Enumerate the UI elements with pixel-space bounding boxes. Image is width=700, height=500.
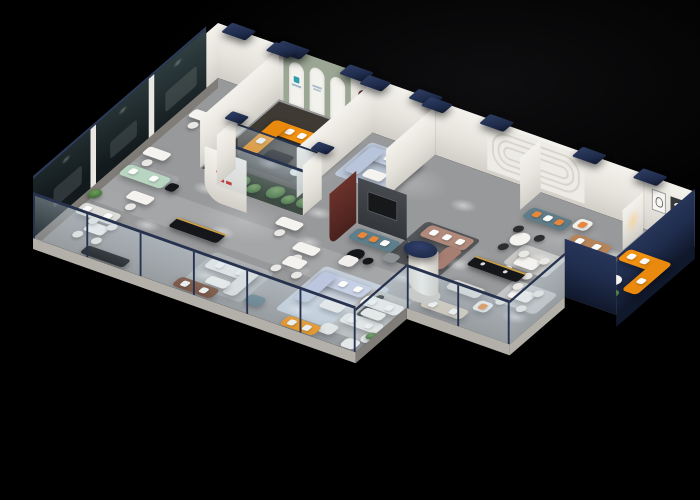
pillow	[635, 278, 647, 285]
glass-post	[508, 303, 510, 345]
pillow	[284, 128, 296, 135]
pillow	[626, 253, 638, 260]
pillow	[127, 168, 139, 175]
orange-pillow	[553, 219, 565, 226]
glass-mullion	[149, 74, 155, 141]
glass-post	[300, 289, 302, 333]
pillow	[454, 238, 466, 245]
brand-logo-text	[292, 83, 301, 88]
decor-object	[502, 270, 509, 274]
pillow	[542, 215, 554, 222]
arch-panel	[310, 65, 325, 115]
showcase-spotlight	[118, 103, 127, 117]
pillow	[639, 258, 651, 265]
frame-sketch-line	[656, 196, 663, 209]
glass-post	[140, 233, 142, 277]
pillow	[148, 175, 160, 182]
tv-screen	[367, 191, 397, 222]
glass-post	[407, 267, 409, 309]
pillow	[352, 286, 364, 293]
orange-pillow	[368, 236, 380, 243]
brand-logo-mark	[294, 76, 300, 84]
orange-pillow	[356, 232, 368, 239]
glass-post	[33, 195, 35, 239]
glass-post	[354, 309, 356, 353]
glass-post	[457, 285, 459, 327]
art-frame-sketch	[652, 189, 666, 215]
pillow	[379, 240, 391, 247]
showroom-render	[0, 0, 700, 500]
pillow	[337, 280, 349, 287]
showcase-spotlight	[173, 56, 182, 70]
glass-post	[193, 252, 195, 296]
pillow	[441, 234, 453, 241]
orange-pillow	[577, 221, 589, 228]
decor-object	[479, 262, 486, 266]
arch-panel	[289, 60, 304, 108]
cabinet-glow	[626, 203, 640, 239]
orange-pillow	[531, 211, 543, 218]
glass-post	[246, 271, 248, 315]
glass-post	[86, 214, 88, 258]
showcase-spotlight	[61, 152, 70, 166]
pillow	[428, 229, 440, 236]
downlight	[445, 196, 481, 215]
glass-mullion	[91, 125, 97, 192]
